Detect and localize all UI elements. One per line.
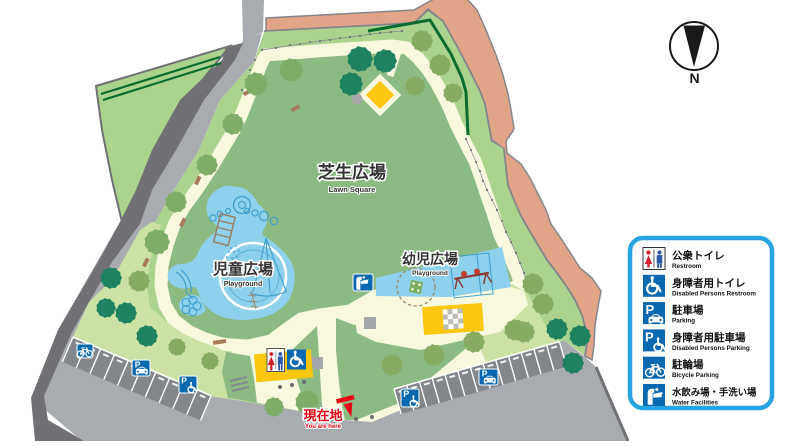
svg-text:Playground: Playground [224, 281, 263, 288]
svg-text:P: P [403, 389, 409, 399]
svg-text:Restroom: Restroom [672, 263, 702, 270]
svg-text:P: P [181, 376, 187, 386]
svg-text:公衆トイレ: 公衆トイレ [672, 249, 725, 262]
svg-text:N: N [689, 70, 699, 86]
svg-text:身障者用駐車場: 身障者用駐車場 [672, 331, 746, 344]
svg-text:Playground: Playground [412, 270, 448, 277]
svg-text:幼児広場: 幼児広場 [402, 251, 458, 267]
svg-text:身障者用トイレ: 身障者用トイレ [672, 276, 746, 289]
svg-text:児童広場: 児童広場 [212, 260, 273, 278]
svg-text:You are here: You are here [305, 424, 342, 430]
svg-text:Disabled Persons Restroom: Disabled Persons Restroom [672, 290, 756, 297]
svg-text:Parking: Parking [672, 318, 695, 325]
svg-text:現在地: 現在地 [303, 408, 342, 423]
svg-text:駐車場: 駐車場 [672, 304, 704, 317]
svg-text:Disabled Persons Parking: Disabled Persons Parking [672, 345, 750, 352]
svg-text:Bicycle Parking: Bicycle Parking [672, 372, 719, 379]
svg-text:水飲み場・手洗い場: 水飲み場・手洗い場 [672, 387, 757, 398]
svg-text:Lawn Square: Lawn Square [329, 185, 376, 194]
svg-text:駐輪場: 駐輪場 [672, 358, 704, 371]
svg-text:芝生広場: 芝生広場 [318, 162, 386, 182]
svg-text:Water Facilities: Water Facilities [672, 400, 718, 407]
svg-text:P: P [645, 329, 654, 344]
